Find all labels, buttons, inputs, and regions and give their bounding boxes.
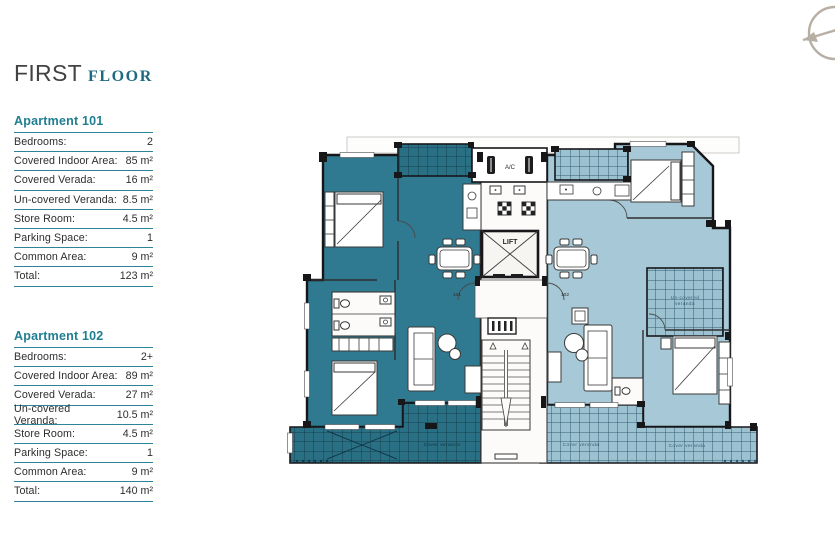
row-value: 1: [147, 447, 153, 459]
row-label: Store Room:: [14, 428, 75, 440]
row-value: 8.5 m²: [123, 194, 153, 206]
table-row: Total:140 m²: [14, 482, 153, 501]
sofa: [408, 327, 435, 391]
table-row: Covered Indoor Area:89 m²: [14, 367, 153, 386]
ac-closet: A/C: [472, 148, 547, 182]
row-value: 89 m²: [126, 370, 153, 382]
row-label: Total:: [14, 270, 40, 282]
row-label: Bedrooms:: [14, 351, 67, 363]
apartment-101-table: Apartment 101 Bedrooms:2Covered Indoor A…: [14, 114, 153, 287]
table-rows: Bedrooms:2Covered Indoor Area:85 m²Cover…: [14, 132, 153, 287]
table-row: Covered Indoor Area:85 m²: [14, 152, 153, 171]
row-label: Common Area:: [14, 251, 86, 263]
kitchen-counter: [463, 184, 481, 230]
row-value: 9 m²: [132, 466, 153, 478]
wc-room: [612, 378, 643, 405]
veranda-label: Cover veranda: [563, 442, 600, 447]
row-value: 27 m²: [126, 389, 153, 401]
row-value: 9 m²: [132, 251, 153, 263]
row-label: Store Room:: [14, 213, 75, 225]
lift-label: LIFT: [503, 239, 518, 246]
pouf: [576, 349, 588, 361]
table-rows: Bedrooms:2+Covered Indoor Area:89 m²Cove…: [14, 347, 153, 502]
veranda-top-left: [398, 144, 472, 176]
pouf: [450, 349, 461, 360]
table-row: Covered Verada:16 m²: [14, 171, 153, 190]
row-value: 123 m²: [120, 270, 153, 282]
veranda-label: Un-covered: [671, 295, 700, 300]
sink: [380, 318, 391, 326]
lift: LIFT: [482, 231, 538, 278]
veranda-top-right: [555, 149, 628, 180]
page: { "title": { "first": "FIRST", "floor": …: [0, 0, 835, 543]
apartment-name: Apartment 101: [14, 114, 153, 128]
table-row: Store Room:4.5 m²: [14, 210, 153, 229]
row-value: 2+: [141, 351, 153, 363]
door-102-label: 102: [561, 292, 569, 298]
row-label: Covered Indoor Area:: [14, 155, 118, 167]
tv-console: [465, 366, 481, 393]
meter-box: [488, 318, 516, 334]
sink: [380, 296, 391, 304]
kitchen-counter: [547, 182, 640, 200]
row-value: 4.5 m²: [123, 213, 153, 225]
title-first: FIRST: [14, 60, 82, 86]
toilet-icon: [334, 321, 350, 330]
row-value: 1: [147, 232, 153, 244]
table-row: Parking Space:1: [14, 444, 153, 463]
table-row: Common Area:9 m²: [14, 463, 153, 482]
bed: [335, 192, 383, 247]
side-table: [572, 308, 588, 324]
row-label: Bedrooms:: [14, 136, 67, 148]
apartment-102-table: Apartment 102 Bedrooms:2+Covered Indoor …: [14, 329, 153, 502]
ac-label: A/C: [505, 165, 516, 171]
kitchen-checker: [522, 202, 535, 215]
page-title: FIRSTFLOOR: [14, 60, 153, 87]
row-label: Total:: [14, 485, 40, 497]
toilet-icon: [334, 299, 350, 308]
table-row: Total:123 m²: [14, 267, 153, 286]
wardrobe: [332, 338, 393, 351]
sofa: [584, 325, 612, 391]
row-label: Parking Space:: [14, 232, 88, 244]
table-row: Bedrooms:2+: [14, 348, 153, 367]
row-label: Covered Indoor Area:: [14, 370, 118, 382]
title-floor: FLOOR: [88, 68, 153, 85]
row-value: 10.5 m²: [117, 409, 153, 421]
bed: [631, 160, 681, 202]
table-row: Common Area:9 m²: [14, 248, 153, 267]
row-label: Un-covered Veranda:: [14, 403, 117, 427]
table-row: Bedrooms:2: [14, 133, 153, 152]
veranda-label: veranda: [675, 301, 695, 306]
bathroom: [332, 292, 395, 336]
row-value: 4.5 m²: [123, 428, 153, 440]
row-label: Covered Verada:: [14, 389, 96, 401]
apartment-name: Apartment 102: [14, 329, 153, 343]
row-label: Common Area:: [14, 466, 86, 478]
table-row: Parking Space:1: [14, 229, 153, 248]
wardrobe: [325, 192, 334, 247]
row-label: Parking Space:: [14, 447, 88, 459]
kitchen-checker: [498, 202, 511, 215]
floor-plan: A/C LIFT 101 102: [285, 128, 835, 478]
wardrobe: [682, 152, 694, 206]
door-101-label: 101: [453, 292, 461, 298]
row-label: Un-covered Veranda:: [14, 194, 117, 206]
table-row: Un-covered Veranda:10.5 m²: [14, 406, 153, 425]
veranda-label: Cover veranda: [669, 443, 706, 448]
tv-console: [548, 352, 561, 382]
table-row: Store Room:4.5 m²: [14, 425, 153, 444]
row-value: 16 m²: [126, 174, 153, 186]
row-label: Covered Verada:: [14, 174, 96, 186]
row-value: 85 m²: [126, 155, 153, 167]
compass-icon: [791, 2, 835, 68]
row-value: 2: [147, 136, 153, 148]
bed: [332, 361, 377, 415]
veranda-label: Cover veranda: [424, 442, 461, 447]
row-value: 140 m²: [120, 485, 153, 497]
table-row: Un-covered Veranda:8.5 m²: [14, 191, 153, 210]
